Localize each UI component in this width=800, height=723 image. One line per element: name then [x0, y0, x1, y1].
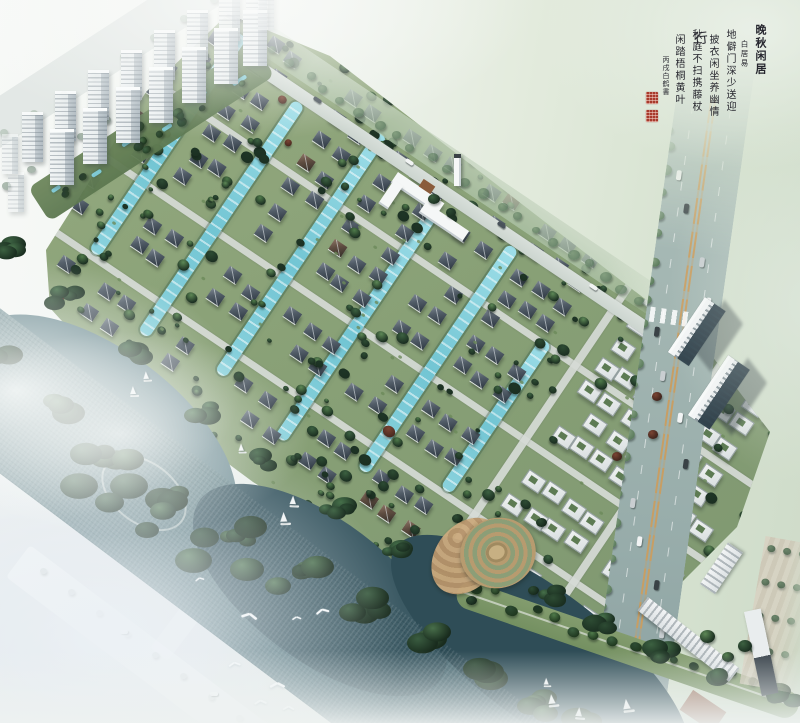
tree: [542, 661, 553, 672]
villa-house: [298, 451, 317, 469]
bank-forest: [265, 577, 291, 595]
car: [653, 580, 659, 591]
villa-house: [112, 126, 131, 144]
street-tree: [716, 337, 728, 347]
bank-forest: [190, 527, 219, 547]
tree: [317, 80, 324, 87]
villa-house: [174, 38, 193, 56]
tree: [786, 443, 793, 449]
calligrapher-signature: 丙戌白鹤書: [661, 56, 671, 96]
villa-house: [207, 31, 226, 49]
villa-house: [202, 0, 221, 14]
tree: [383, 535, 394, 545]
villa-house: [70, 196, 89, 214]
car: [699, 257, 705, 268]
bird: [283, 704, 296, 711]
bg-tree: [60, 91, 68, 98]
bg-tree: [150, 34, 158, 41]
villa-house: [131, 144, 150, 162]
tree: [466, 154, 481, 168]
bird: [292, 615, 303, 622]
boat-hull: [544, 685, 552, 687]
villa-house: [269, 203, 288, 221]
street-tree: [745, 145, 756, 155]
plaza-tree: [777, 581, 786, 589]
apartment-tower: [55, 91, 76, 141]
bg-tree: [68, 589, 75, 595]
tree: [121, 307, 137, 322]
tree: [122, 397, 138, 412]
villa-house: [173, 166, 192, 184]
plaza-tree: [781, 651, 790, 659]
tree: [234, 433, 244, 442]
street-tree: [643, 276, 655, 286]
tree: [494, 485, 503, 493]
bg-tree: [180, 15, 188, 22]
bank-forest: [168, 486, 189, 500]
villa-house: [229, 302, 248, 320]
street-tree: [668, 687, 678, 696]
tree: [748, 351, 761, 363]
apartment-tower: [246, 0, 267, 24]
villa-house: [254, 224, 273, 242]
villa-house: [347, 255, 366, 273]
villa-house: [258, 391, 277, 409]
lawn-tree: [504, 604, 519, 618]
seal-stamp: [646, 92, 658, 104]
bank-forest: [533, 705, 558, 722]
tree: [170, 430, 184, 444]
tree: [716, 548, 723, 555]
villa-house: [225, 7, 244, 25]
bg-tree: [96, 610, 103, 616]
bank-forest: [43, 394, 64, 409]
bg-tree: [210, 0, 218, 3]
tree: [463, 198, 480, 214]
tree: [577, 315, 591, 328]
villa-house: [303, 322, 322, 340]
villa-house: [519, 301, 538, 319]
villa-house: [240, 410, 259, 428]
tree: [332, 525, 347, 540]
tree: [192, 375, 199, 382]
villa-house: [409, 294, 428, 312]
villa-house: [470, 370, 489, 388]
tree: [61, 338, 77, 353]
street-tree: [680, 602, 691, 611]
tree: [303, 498, 314, 508]
courtyard-house: [581, 413, 607, 438]
villa-house: [395, 485, 414, 503]
bird: [254, 698, 268, 707]
villa-house: [328, 109, 347, 127]
poem-author: 白居易: [739, 22, 750, 144]
plaza-tree: [787, 617, 796, 625]
estate-tree: [60, 189, 71, 199]
bank-forest: [416, 629, 447, 650]
bank-forest: [339, 604, 366, 622]
villa-house: [385, 375, 404, 393]
lawn-tree: [708, 672, 718, 681]
villa-house: [368, 396, 387, 414]
shrub: [306, 414, 311, 419]
courtyard-house: [761, 371, 787, 396]
bank-forest: [0, 246, 17, 260]
bank-forest: [1, 236, 26, 253]
bank-forest: [423, 622, 451, 641]
tree: [408, 572, 422, 585]
bank-forest: [471, 661, 504, 683]
shrub: [193, 419, 198, 424]
tree: [276, 94, 288, 106]
bank-forest: [112, 448, 144, 470]
tree: [739, 356, 751, 368]
street-tree: [729, 248, 740, 258]
bank-forest: [135, 522, 159, 538]
tree: [677, 617, 691, 631]
bank-forest: [463, 657, 496, 680]
lawn-tree: [688, 661, 700, 672]
courtyard-tree: [722, 652, 734, 662]
villa-house: [313, 131, 332, 149]
bank-forest: [48, 399, 67, 412]
sailboat: [280, 512, 291, 525]
plaza-tree: [755, 611, 764, 619]
estate-edge-tree: [102, 116, 111, 124]
poem-tail-character: 行: [693, 27, 709, 48]
courtyard-tree: [700, 630, 715, 643]
tree: [359, 351, 369, 361]
bank-forest: [367, 602, 391, 619]
shrub: [390, 200, 395, 205]
street-tree: [738, 183, 751, 194]
tree: [380, 210, 387, 217]
tree: [396, 209, 411, 223]
bg-car: [210, 692, 218, 696]
villa-house: [438, 251, 457, 269]
tree: [364, 90, 378, 104]
villa-house: [343, 89, 362, 107]
shrub: [339, 213, 344, 218]
bg-tree: [120, 53, 128, 60]
villa-house: [482, 184, 501, 202]
tree: [31, 284, 45, 298]
tree: [544, 685, 555, 696]
tree: [441, 178, 449, 185]
villa-house: [525, 243, 544, 261]
bank-forest: [150, 502, 176, 520]
plaza-tree: [765, 648, 774, 656]
villa-house: [165, 229, 184, 247]
villa-house: [158, 59, 177, 77]
bg-car: [120, 630, 128, 634]
bank-forest: [350, 604, 378, 623]
courtyard-house: [728, 412, 754, 437]
tree: [349, 445, 361, 457]
tree: [69, 263, 83, 277]
tree: [325, 490, 336, 500]
tree: [609, 257, 626, 273]
bank-forest: [5, 243, 26, 257]
tree: [74, 184, 86, 196]
bank-forest: [356, 587, 388, 609]
tree: [391, 436, 405, 450]
car: [683, 203, 689, 214]
tree: [210, 431, 219, 440]
tree: [611, 254, 623, 266]
shrub: [238, 108, 243, 113]
shrub: [373, 245, 378, 250]
villa-house: [550, 257, 569, 275]
tree: [317, 489, 325, 497]
tree: [464, 475, 474, 485]
tree: [414, 416, 422, 424]
villa-house: [428, 306, 447, 324]
street-tree: [722, 314, 733, 324]
tree: [338, 468, 354, 484]
tree: [615, 311, 627, 322]
villa-house: [558, 237, 577, 255]
estate-edge-tree: [52, 149, 61, 157]
street-tree: [659, 164, 673, 176]
car: [636, 536, 642, 547]
tree: [173, 322, 180, 329]
street-tree: [743, 160, 756, 171]
tree: [151, 396, 160, 405]
villa-house: [330, 274, 349, 292]
tree: [42, 303, 52, 312]
estate-edge-tree: [127, 100, 136, 108]
villa-house: [98, 283, 117, 301]
shrub: [453, 430, 458, 435]
tree: [65, 330, 81, 346]
bank-forest: [175, 548, 212, 573]
tree: [759, 382, 766, 389]
apartment-tower: [50, 129, 74, 185]
villa-house: [190, 16, 209, 34]
bank-forest: [110, 473, 148, 499]
villa-house: [161, 353, 180, 371]
villa-house: [283, 306, 302, 324]
bank-forest: [407, 632, 438, 653]
tree: [434, 605, 444, 615]
bank-forest: [226, 529, 246, 543]
tree: [389, 550, 397, 557]
bank-forest: [90, 448, 118, 467]
lawn-tree: [605, 634, 620, 647]
villa-house: [317, 429, 336, 447]
tree: [372, 541, 379, 548]
park-path-loop: [87, 439, 201, 546]
boat-sail: [280, 512, 287, 522]
villa-house: [536, 313, 555, 331]
villa-house: [290, 344, 309, 362]
shrub: [270, 480, 275, 485]
tree: [95, 207, 105, 217]
boat-hull: [280, 522, 291, 525]
plaza-tree: [771, 614, 780, 622]
courtyard-house: [588, 448, 614, 473]
lawn-tree: [532, 604, 544, 615]
tree: [253, 194, 267, 207]
bank-forest: [531, 689, 557, 707]
boat-hull: [549, 704, 560, 707]
east-paved-plaza: [739, 536, 800, 694]
bank-forest: [295, 561, 320, 578]
bird: [269, 680, 286, 690]
villa-house: [538, 223, 557, 241]
car: [705, 297, 711, 308]
car: [660, 371, 666, 382]
street-tree: [590, 668, 599, 676]
street-tree: [652, 229, 662, 238]
boat-hull: [575, 716, 585, 719]
estate-tree: [60, 185, 70, 194]
bird: [315, 605, 332, 617]
estate-edge-tree: [2, 182, 11, 190]
villa-house: [143, 217, 162, 235]
apartment-tower: [83, 108, 107, 164]
bg-tree: [124, 631, 131, 637]
bank-forest: [102, 450, 131, 469]
shrub: [395, 577, 400, 582]
tree: [737, 509, 751, 523]
apartment-tower: [121, 50, 142, 100]
sailboat: [544, 678, 552, 687]
tree: [462, 489, 474, 501]
apartment-tower: [22, 112, 43, 162]
shrub: [229, 10, 234, 15]
shrub: [553, 330, 558, 335]
tree: [381, 92, 397, 107]
lawn-tree: [765, 688, 781, 702]
bg-tree: [152, 652, 159, 658]
bg-tree: [180, 673, 187, 679]
bank-forest: [0, 345, 23, 364]
tree: [743, 361, 755, 373]
bird: [228, 659, 242, 668]
tree: [0, 282, 16, 297]
courtyard-house: [778, 384, 800, 409]
lawn-tree: [629, 640, 643, 653]
street-tree: [648, 257, 660, 268]
bank-forest: [239, 535, 256, 547]
street-tree: [679, 621, 690, 631]
bank-forest: [48, 396, 74, 414]
bank-forest: [220, 530, 237, 542]
street-tree: [725, 295, 736, 305]
villa-house: [568, 274, 587, 292]
villa-house: [208, 158, 227, 176]
street-tree: [727, 276, 737, 285]
tree: [107, 193, 115, 201]
villa-house: [421, 400, 440, 418]
shrub: [499, 625, 504, 630]
tree: [337, 537, 352, 551]
bank-forest: [517, 697, 543, 715]
tree: [114, 289, 121, 296]
courtyard-house: [564, 529, 590, 554]
courtyard-house: [766, 441, 792, 466]
villa-house: [390, 150, 409, 168]
shrub: [200, 276, 205, 281]
villa-house: [296, 153, 315, 171]
bg-tree: [40, 568, 47, 574]
lawn-tree: [645, 648, 657, 659]
bg-road-sw: [6, 545, 365, 723]
villa-house: [250, 92, 269, 110]
tree: [184, 291, 199, 305]
villa-house: [485, 346, 504, 364]
shrub: [380, 391, 385, 396]
tree: [560, 280, 567, 287]
bank-forest: [0, 349, 8, 364]
apartment-tower-faint: [2, 134, 18, 174]
car: [677, 413, 683, 424]
bird: [240, 609, 260, 622]
villa-house: [425, 439, 444, 457]
bg-tree: [0, 129, 8, 136]
bank-forest: [70, 443, 102, 465]
bank-forest: [95, 492, 124, 512]
tree: [692, 588, 700, 596]
street-tree: [653, 210, 665, 221]
car: [659, 628, 665, 639]
bg-tree: [30, 110, 38, 117]
villa-house: [453, 356, 472, 374]
villa-house: [410, 332, 429, 350]
estate-pond: [51, 184, 62, 193]
estate-edge-tree: [27, 166, 36, 174]
bg-tree: [90, 72, 98, 79]
villa-house: [474, 241, 493, 259]
bg-tree: [236, 715, 243, 721]
shrub: [462, 617, 467, 622]
street-tree: [733, 230, 745, 241]
tree: [202, 17, 212, 27]
tree: [70, 370, 82, 382]
shrub: [330, 505, 335, 510]
bank-forest: [157, 491, 188, 512]
tree: [531, 195, 542, 206]
boat-sail: [544, 678, 549, 685]
villa-house: [372, 173, 391, 191]
villa-house: [406, 424, 425, 442]
villa-house: [223, 265, 242, 283]
street-tree: [736, 207, 746, 215]
villa-house: [146, 249, 165, 267]
villa-house: [130, 235, 149, 253]
villa-house: [345, 383, 364, 401]
bank-forest: [477, 662, 495, 674]
tree: [530, 377, 540, 386]
poem-title: 晚秋闲居: [752, 22, 768, 144]
lawn-tree: [747, 676, 759, 687]
bank-forest: [474, 667, 508, 690]
lawn-tree: [586, 629, 600, 642]
bank-forest: [414, 633, 433, 646]
tree: [476, 173, 484, 181]
tree: [140, 367, 149, 375]
plaza-tree: [761, 578, 770, 586]
tree: [41, 297, 50, 306]
tree: [310, 98, 317, 105]
tree: [283, 138, 293, 148]
tree: [266, 338, 273, 344]
tree: [423, 242, 433, 252]
sailboat: [575, 707, 586, 719]
villa-house: [100, 318, 119, 336]
